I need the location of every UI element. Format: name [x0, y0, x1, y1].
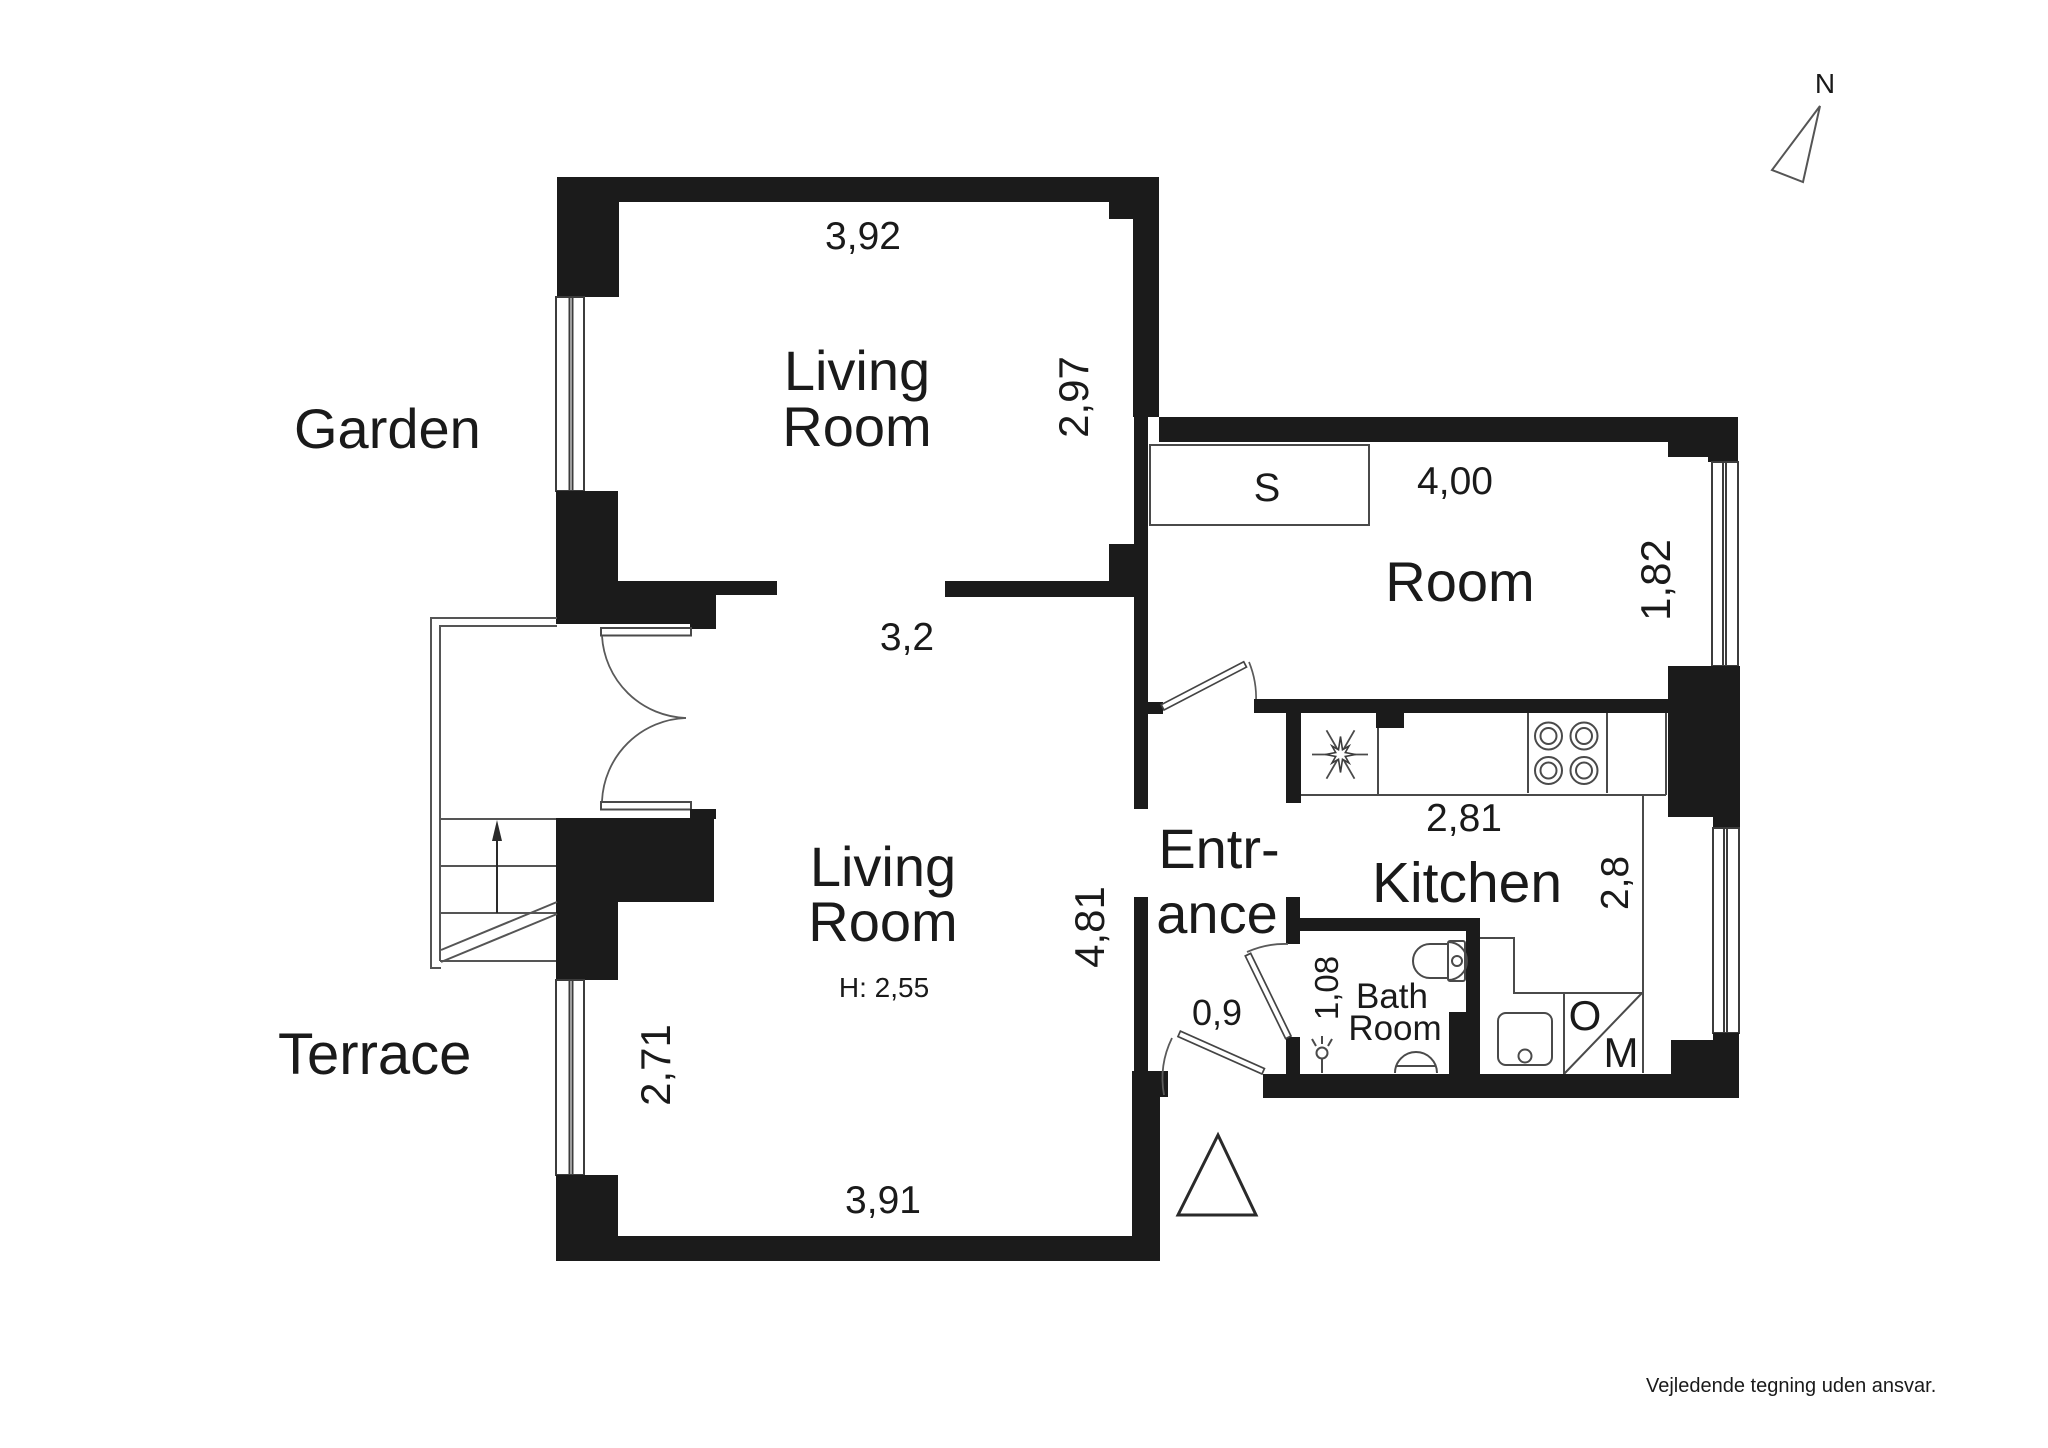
svg-text:2,71: 2,71 [632, 1024, 679, 1106]
svg-text:N: N [1815, 68, 1835, 99]
svg-text:1,08: 1,08 [1308, 956, 1345, 1020]
svg-text:3,91: 3,91 [845, 1179, 921, 1222]
svg-text:Room: Room [808, 890, 957, 953]
svg-text:1,82: 1,82 [1632, 539, 1679, 621]
svg-text:ance: ance [1156, 882, 1277, 945]
svg-text:Kitchen: Kitchen [1372, 851, 1562, 915]
svg-text:H: 2,55: H: 2,55 [839, 972, 929, 1003]
svg-text:4,81: 4,81 [1066, 886, 1113, 968]
svg-text:3,2: 3,2 [880, 616, 934, 659]
svg-text:Garden: Garden [294, 397, 481, 460]
svg-text:Entr-: Entr- [1158, 817, 1279, 880]
svg-text:Vejledende tegning uden ansvar: Vejledende tegning uden ansvar. [1646, 1375, 1936, 1397]
svg-text:Room: Room [782, 395, 931, 458]
svg-text:Living: Living [784, 339, 930, 402]
svg-text:4,00: 4,00 [1417, 460, 1493, 503]
svg-text:Room: Room [1385, 550, 1534, 613]
svg-text:0,9: 0,9 [1192, 992, 1242, 1033]
svg-text:Room: Room [1348, 1009, 1441, 1048]
svg-text:Living: Living [810, 835, 956, 898]
svg-text:S: S [1254, 466, 1281, 510]
svg-text:3,92: 3,92 [825, 215, 901, 258]
svg-text:2,97: 2,97 [1050, 356, 1097, 438]
svg-text:M: M [1604, 1029, 1639, 1076]
svg-text:2,81: 2,81 [1426, 797, 1502, 840]
svg-text:Terrace: Terrace [278, 1022, 471, 1087]
svg-text:2,8: 2,8 [1594, 856, 1637, 910]
svg-text:O: O [1569, 992, 1602, 1039]
